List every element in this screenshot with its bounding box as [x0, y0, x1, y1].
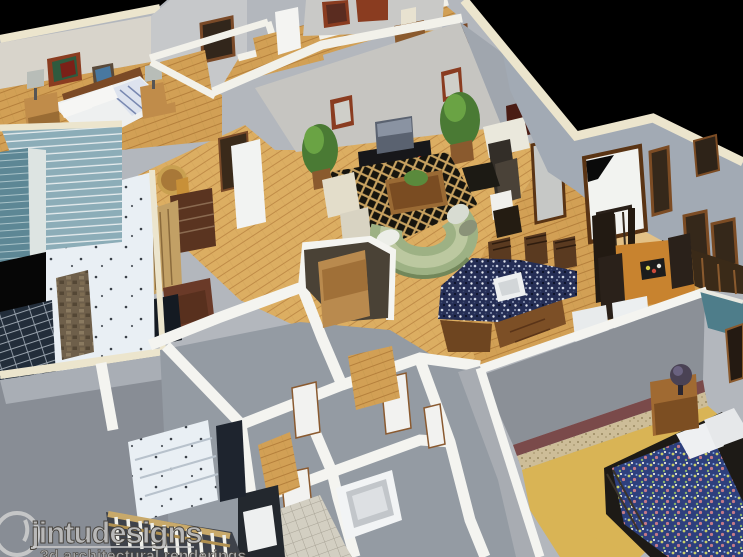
svg-text:3d architectural renderings: 3d architectural renderings	[40, 548, 246, 557]
svg-text:jintudesigns: jintudesigns	[30, 515, 202, 550]
